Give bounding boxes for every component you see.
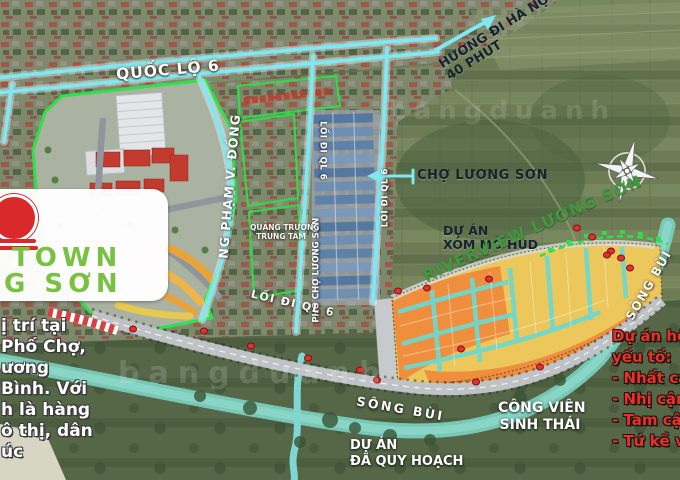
caption-left-line: h là hàng — [1, 400, 93, 421]
caption-right-line: Dự án hội — [612, 326, 680, 347]
caption-right-line: - Nhất cận — [612, 368, 680, 389]
logo-text-line2: G SƠN — [4, 271, 123, 297]
park-line2: SINH THÁI — [498, 417, 582, 434]
watermark: bangduanh — [388, 96, 616, 126]
caption-right-line: yếu tố: — [612, 347, 680, 368]
quang-truong-line1: QUẢNG TRƯỜNG — [250, 223, 312, 232]
caption-left-line: Phố Chợ, — [1, 337, 93, 358]
caption-right-line: - Tam cận — [612, 410, 680, 431]
caption-right-line: - Nhị cận — [612, 389, 680, 410]
caption-left-line: ương — [1, 358, 93, 379]
label-cong-vien-sinh-thai: CÔNG VIÊN SINH THÁI — [498, 400, 582, 434]
planned-line2: ĐÃ QUY HOẠCH — [350, 454, 463, 470]
caption-left-line: Bình. Với — [1, 379, 93, 400]
caption-left-line: ô thị, dân — [1, 421, 93, 442]
park-line1: CÔNG VIÊN — [498, 400, 582, 417]
caption-left-line: ị trí tại — [1, 316, 93, 337]
road-label-loi-di-ql6-top: LỐI ĐI QL 6 — [317, 113, 326, 189]
logo-badge-icon — [0, 194, 38, 242]
caption-left-line: úc — [1, 442, 93, 463]
planned-line1: DỰ ÁN — [350, 438, 463, 454]
road-label-loi-di-ql6-right: LỐI ĐI QL 6 — [381, 160, 390, 236]
caption-right: Dự án hội yếu tố: - Nhất cận - Nhị cận -… — [612, 326, 680, 452]
project-logo-box: TOWN G SƠN — [0, 189, 168, 301]
watermark: bangduanh — [118, 356, 389, 391]
caption-left: ị trí tại Phố Chợ, ương Bình. Với h là h… — [1, 316, 93, 463]
label-du-an-da-quy-hoach: DỰ ÁN ĐÃ QUY HOẠCH — [350, 438, 463, 469]
label-quang-truong: QUẢNG TRƯỜNG TRUNG TÂM — [250, 223, 312, 241]
logo-text-line1: TOWN — [12, 245, 122, 271]
map: bangduanh bangduanh QUỐC LỘ 6 HƯỚNG ĐI H… — [0, 0, 680, 480]
caption-right-line: - Tứ kề vư — [612, 431, 680, 452]
label-cho-luong-son: CHỢ LƯƠNG SƠN — [417, 169, 548, 183]
quang-truong-line2: TRUNG TÂM — [250, 232, 312, 241]
